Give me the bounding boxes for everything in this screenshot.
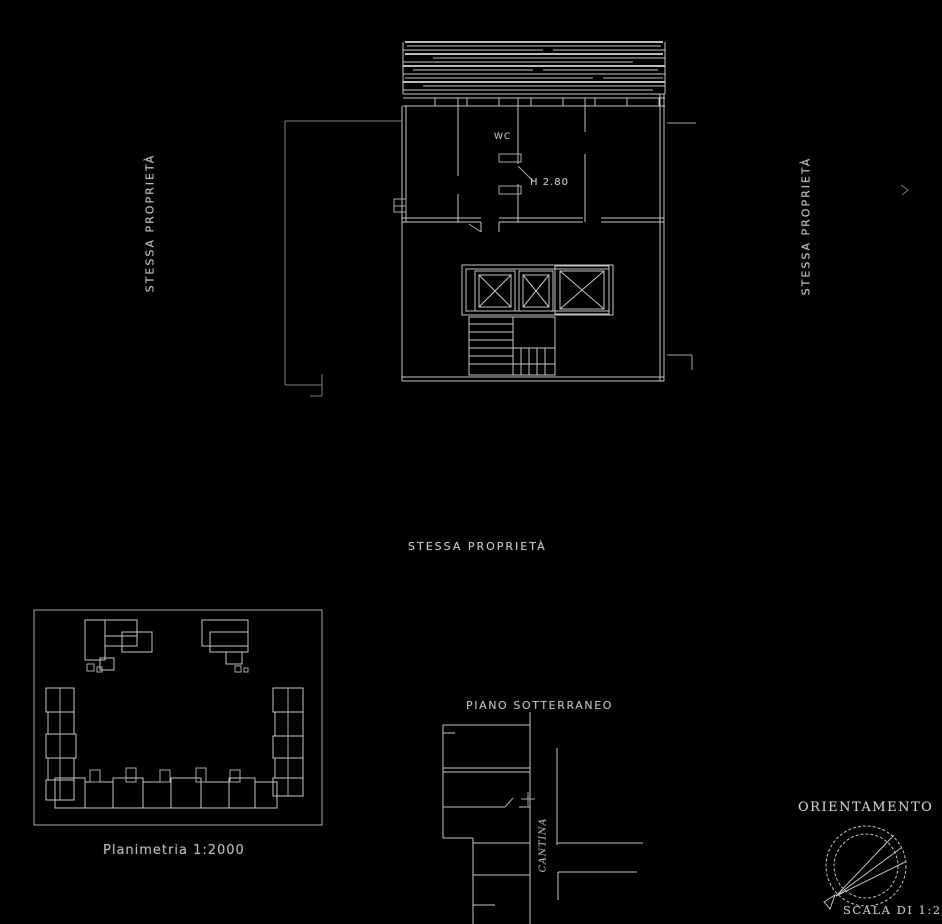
- site-plan-drawing: [30, 602, 330, 847]
- outer-walls: [394, 94, 664, 381]
- site-building-top-right: [202, 620, 248, 672]
- upper-rooms-partitions: [402, 98, 664, 232]
- site-building-left-row: [46, 688, 76, 800]
- right-property-label: STESSA PROPRIETÀ: [800, 157, 813, 296]
- scanned-floor-plan-sheet: { "document": { "background": "#000000",…: [0, 0, 942, 924]
- adjacent-unit-outline: [280, 118, 410, 403]
- ceiling-height-label: H 2.80: [530, 177, 569, 188]
- orientation-title: ORIENTAMENTO: [798, 800, 933, 815]
- staircase: [469, 317, 555, 375]
- scale-caption: SCALA DI 1:200: [843, 903, 942, 917]
- exterior-reference-lines: [667, 123, 696, 370]
- wc-room-label: WC: [494, 132, 511, 142]
- terrace-hatch-band: [403, 42, 665, 94]
- elevator-shaft: [555, 266, 609, 314]
- window-wall: [403, 98, 665, 106]
- site-boundary: [34, 610, 322, 825]
- left-property-label: STESSA PROPRIETÀ: [144, 154, 157, 293]
- elevator-shaft: [475, 271, 515, 311]
- elevator-block: [462, 265, 613, 315]
- site-building-bottom-row: [55, 768, 277, 808]
- elevator-shaft: [519, 271, 553, 311]
- site-building-top-left: [85, 620, 152, 672]
- main-floor-plan-drawing: [393, 36, 713, 386]
- stray-mark: [898, 182, 916, 200]
- basement-corridor-lines: [557, 748, 643, 900]
- bottom-property-label: STESSA PROPRIETÀ: [408, 540, 547, 553]
- site-building-right-row: [273, 688, 303, 796]
- basement-plan-drawing: [435, 710, 665, 924]
- site-plan-caption: Planimetria 1:2000: [103, 843, 245, 858]
- basement-cellar-strip: [443, 712, 535, 924]
- cantina-room-label: CANTINA: [538, 818, 549, 873]
